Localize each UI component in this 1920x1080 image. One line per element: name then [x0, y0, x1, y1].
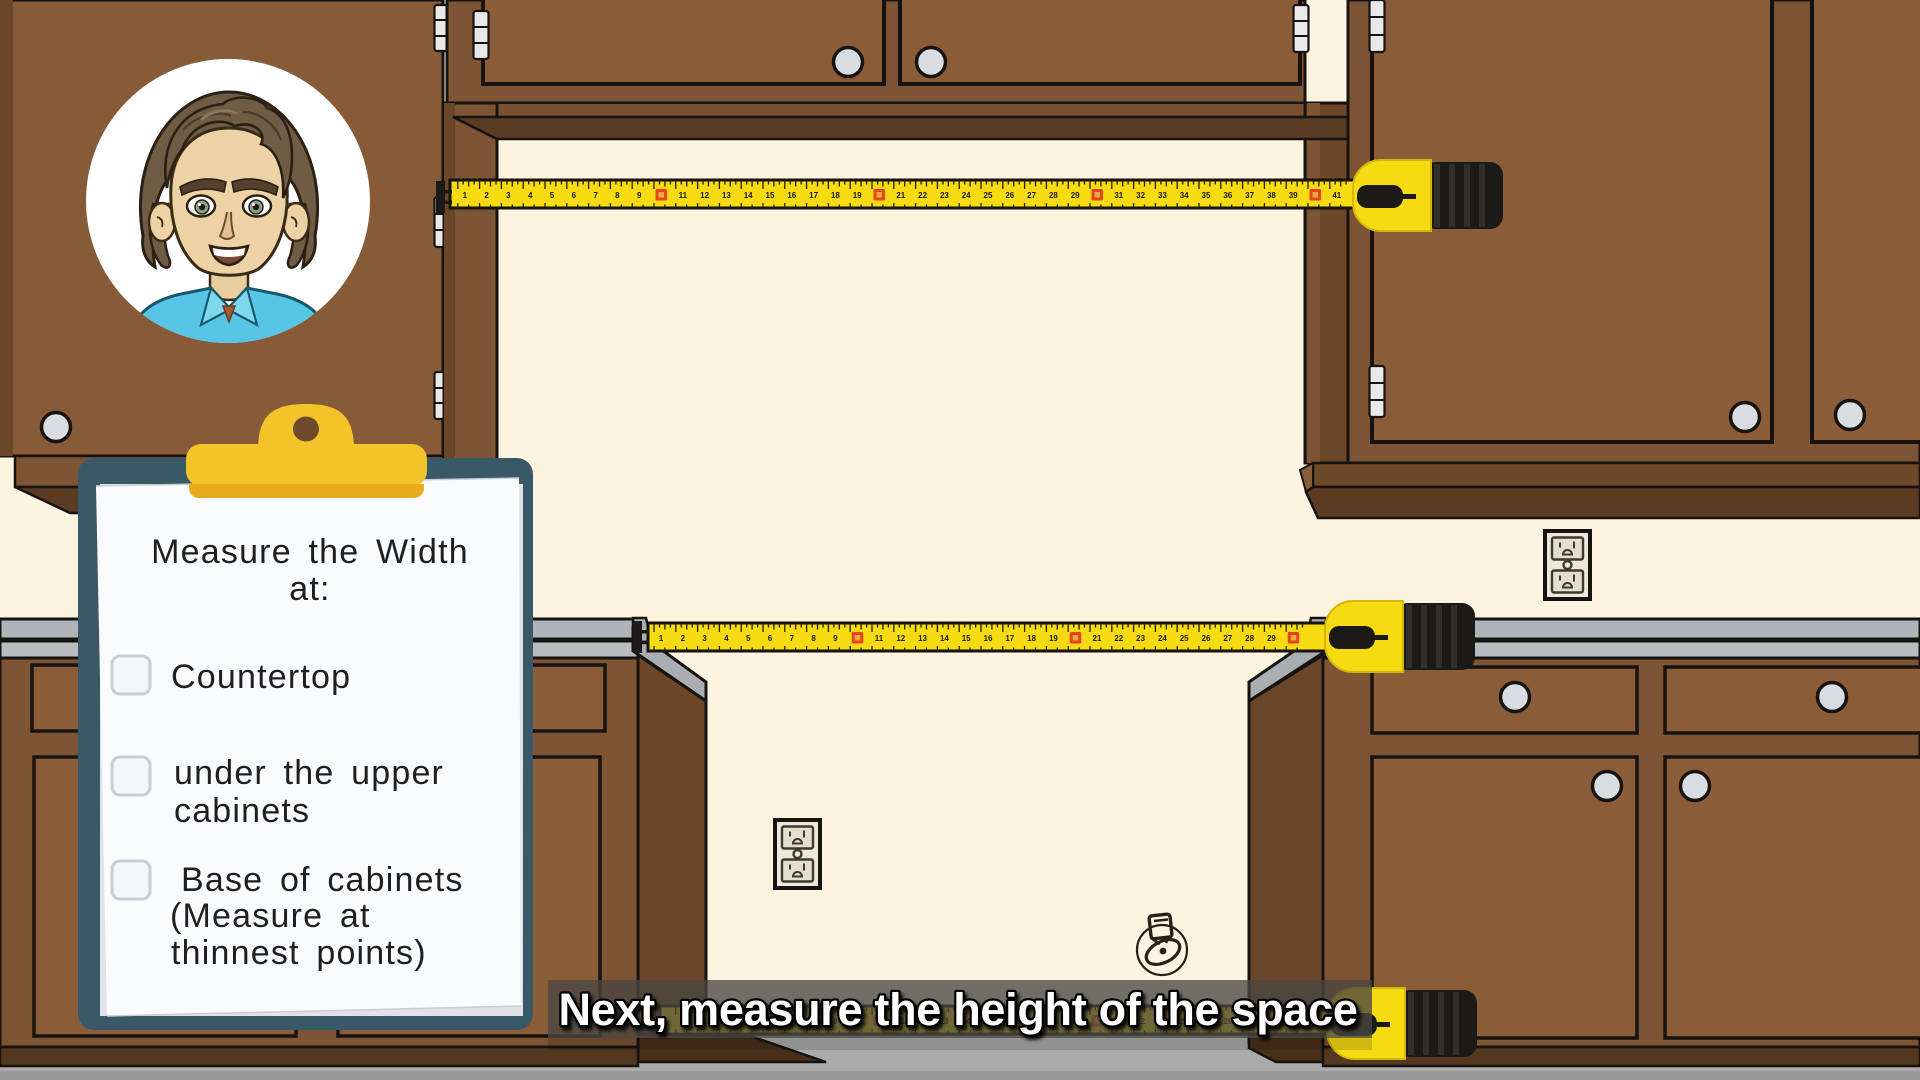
svg-text:(Measure at: (Measure at	[170, 897, 371, 935]
svg-text:29: 29	[1267, 634, 1276, 643]
svg-text:thinnest points): thinnest points)	[171, 934, 427, 972]
svg-text:4: 4	[528, 191, 533, 200]
svg-text:41: 41	[1332, 191, 1341, 200]
svg-text:7: 7	[790, 634, 795, 643]
svg-text:3: 3	[506, 191, 511, 200]
svg-text:24: 24	[962, 191, 971, 200]
svg-text:28: 28	[1049, 191, 1058, 200]
svg-text:7: 7	[593, 191, 598, 200]
svg-text:15: 15	[766, 191, 775, 200]
svg-text:34: 34	[1180, 191, 1189, 200]
svg-text:27: 27	[1223, 634, 1232, 643]
svg-text:13: 13	[918, 634, 927, 643]
svg-text:22: 22	[918, 191, 927, 200]
svg-text:38: 38	[1267, 191, 1276, 200]
svg-text:21: 21	[896, 191, 905, 200]
svg-text:18: 18	[831, 191, 840, 200]
svg-text:29: 29	[1071, 191, 1080, 200]
svg-text:13: 13	[722, 191, 731, 200]
svg-text:17: 17	[809, 191, 818, 200]
svg-text:22: 22	[1114, 634, 1123, 643]
svg-text:Next, measure the height of th: Next, measure the height of the space	[558, 984, 1357, 1035]
svg-text:3: 3	[702, 634, 707, 643]
svg-text:5: 5	[746, 634, 751, 643]
svg-text:26: 26	[1202, 634, 1211, 643]
svg-text:8: 8	[615, 191, 620, 200]
svg-text:4: 4	[724, 634, 729, 643]
svg-text:11: 11	[875, 634, 884, 643]
svg-text:Countertop: Countertop	[171, 658, 351, 696]
svg-text:35: 35	[1202, 191, 1211, 200]
svg-text:1: 1	[659, 634, 664, 643]
svg-text:6: 6	[572, 191, 577, 200]
svg-text:36: 36	[1223, 191, 1232, 200]
svg-text:25: 25	[984, 191, 993, 200]
svg-text:1: 1	[463, 191, 468, 200]
svg-text:18: 18	[1027, 634, 1036, 643]
svg-text:24: 24	[1158, 634, 1167, 643]
svg-text:8: 8	[811, 634, 816, 643]
svg-text:16: 16	[787, 191, 796, 200]
svg-text:12: 12	[896, 634, 905, 643]
svg-text:14: 14	[940, 634, 949, 643]
svg-text:2: 2	[681, 634, 686, 643]
svg-text:6: 6	[768, 634, 773, 643]
svg-text:19: 19	[1049, 634, 1058, 643]
svg-text:26: 26	[1005, 191, 1014, 200]
svg-text:17: 17	[1005, 634, 1014, 643]
svg-text:12: 12	[700, 191, 709, 200]
svg-text:39: 39	[1289, 191, 1298, 200]
svg-text:9: 9	[833, 634, 838, 643]
svg-text:5: 5	[550, 191, 555, 200]
svg-text:14: 14	[744, 191, 753, 200]
svg-text:2: 2	[484, 191, 489, 200]
svg-text:16: 16	[984, 634, 993, 643]
svg-text:at:: at:	[289, 570, 330, 608]
svg-text:21: 21	[1093, 634, 1102, 643]
svg-text:23: 23	[940, 191, 949, 200]
svg-text:cabinets: cabinets	[174, 792, 310, 830]
svg-text:11: 11	[679, 191, 688, 200]
svg-text:19: 19	[853, 191, 862, 200]
svg-text:28: 28	[1245, 634, 1254, 643]
svg-text:Measure the Width: Measure the Width	[151, 533, 469, 571]
svg-text:27: 27	[1027, 191, 1036, 200]
svg-text:under the upper: under the upper	[174, 754, 444, 792]
svg-text:32: 32	[1136, 191, 1145, 200]
svg-text:23: 23	[1136, 634, 1145, 643]
svg-text:Base of cabinets: Base of cabinets	[181, 861, 464, 899]
svg-text:15: 15	[962, 634, 971, 643]
svg-text:9: 9	[637, 191, 642, 200]
svg-text:25: 25	[1180, 634, 1189, 643]
svg-text:31: 31	[1114, 191, 1123, 200]
svg-text:33: 33	[1158, 191, 1167, 200]
svg-text:37: 37	[1245, 191, 1254, 200]
